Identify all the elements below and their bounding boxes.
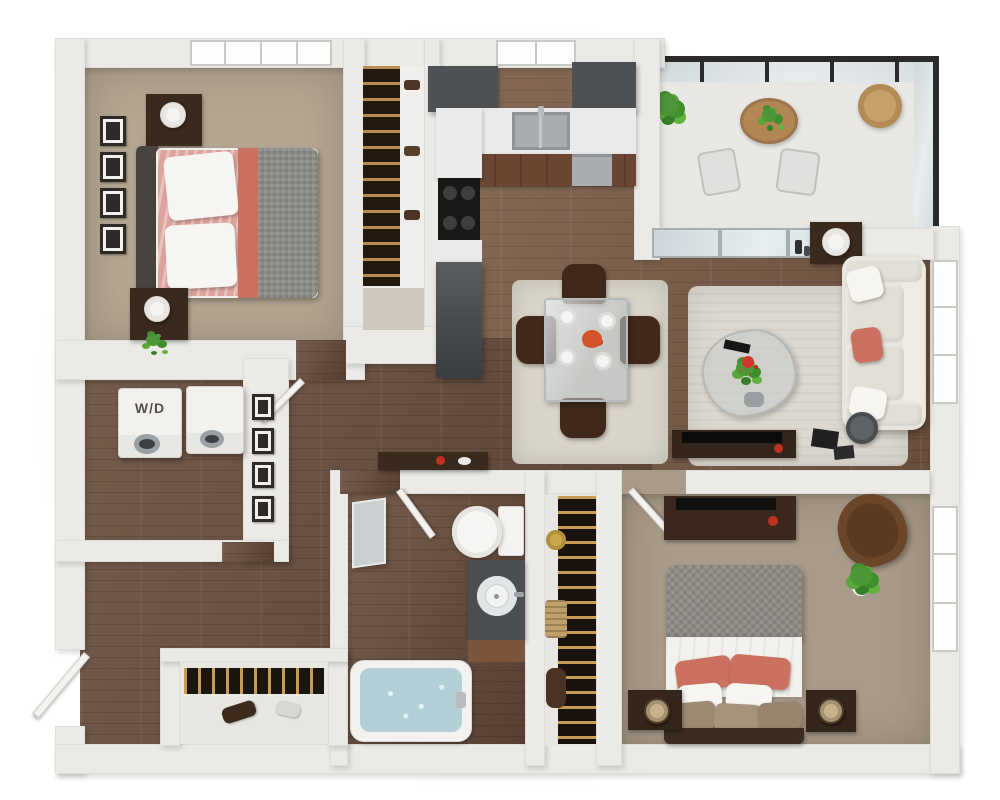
balcony-rail-right-glass <box>914 62 933 228</box>
closet2-hat-box <box>546 530 566 550</box>
balcony-wicker-chair <box>858 84 902 128</box>
bedroom2-duvet-gray <box>666 565 802 639</box>
bathtub-faucet <box>456 692 466 708</box>
bedroom1-headboard <box>136 146 158 300</box>
toilet-bowl <box>452 506 502 558</box>
closet1-shoes <box>404 146 420 156</box>
dryer-door <box>200 430 224 448</box>
bedroom1-wall-art <box>100 188 126 218</box>
sofa-back <box>902 262 924 424</box>
bedroom1-wall-art <box>100 116 126 146</box>
livingroom-window <box>932 260 958 404</box>
bedroom2-plant <box>850 566 872 586</box>
hallway-wall-art <box>252 394 274 420</box>
balcony-rail-post <box>700 60 704 82</box>
livingroom-speaker <box>833 445 854 460</box>
bedroom1-plant <box>146 334 160 346</box>
kitchen-dishwasher <box>572 154 612 186</box>
console-red-decor <box>768 516 778 526</box>
balcony-rail-top-glass <box>636 62 938 82</box>
balcony-rail-post <box>765 60 769 82</box>
closet2-storage-cylinder <box>546 668 566 708</box>
washer-dryer-label: W/D <box>120 400 180 418</box>
doorway-bedroom1 <box>296 340 346 380</box>
wall-bathroom-right <box>525 470 545 766</box>
entry-closet-rod-clothes <box>184 668 324 694</box>
cooktop-burner <box>443 186 457 200</box>
bedroom1-lamp <box>144 296 170 322</box>
wall-entrycloset-left <box>160 648 180 746</box>
balcony-rail-post <box>895 60 899 82</box>
wall-closet1-cap <box>343 326 440 364</box>
closet2-basket <box>545 600 567 638</box>
bedroom2-tv <box>676 498 776 510</box>
bedroom2-lamp <box>644 698 670 724</box>
bedroom1-wall-art <box>100 152 126 182</box>
closet1-floor-patch <box>363 288 424 330</box>
dining-place-setting <box>594 352 612 370</box>
closet1-shoes <box>404 210 420 220</box>
hallway-wall-art <box>252 496 274 522</box>
bedroom2-window <box>932 506 958 652</box>
bedroom1-lamp <box>160 102 186 128</box>
wall-kitchen-right <box>634 38 660 260</box>
livingroom-floor-lamp <box>846 412 878 444</box>
floorplan-render: W/D <box>0 0 1000 800</box>
kitchen-tall-cabinet <box>436 262 482 378</box>
wall-entrycloset-top <box>160 648 348 662</box>
bedroom2-pillow-taupe <box>757 700 803 731</box>
wall-bedroom1-closet <box>343 38 365 364</box>
dining-place-setting <box>558 308 576 326</box>
wall-closet2-right <box>596 470 622 766</box>
kitchen-sink-divider <box>539 114 542 148</box>
bedroom1-coral-throw <box>238 148 260 298</box>
dining-table-glass <box>544 298 628 402</box>
bathroom-leaning-mirror <box>352 498 386 569</box>
balcony-rail-right-bar <box>933 56 939 228</box>
coffee-table-vase <box>744 392 764 407</box>
console-red-decor <box>774 444 783 453</box>
balcony-table-plant <box>762 108 776 122</box>
bedroom1-gray-duvet <box>258 148 318 298</box>
sofa-pillow-coral <box>850 326 884 364</box>
kitchen-upper-cabinet-right <box>572 62 636 112</box>
kitchen-counter-left-run <box>436 108 482 178</box>
livingroom-bottle-decor <box>804 246 810 256</box>
console-red-decor <box>436 456 445 465</box>
balcony-rail-post <box>830 60 834 82</box>
kitchen-counter-strip <box>436 240 482 262</box>
kitchen-window <box>496 40 576 66</box>
livingroom-bottle-decor <box>795 240 802 254</box>
kitchen-faucet <box>538 106 544 116</box>
bedroom1-window <box>190 40 332 66</box>
dining-chair <box>560 398 606 438</box>
bedroom2-lamp <box>818 698 844 724</box>
livingroom-table-lamp <box>822 228 850 256</box>
bedroom1-wall-art <box>100 224 126 254</box>
wall-laundry-right <box>243 358 289 562</box>
balcony-patio-chair <box>775 147 821 196</box>
hallway-console <box>378 452 488 470</box>
doorway-laundry <box>222 542 274 562</box>
washer-door <box>134 434 160 454</box>
bedroom1-pillow <box>163 151 239 222</box>
bedroom1-pillow <box>164 222 237 290</box>
bedroom2-headboard <box>664 728 804 744</box>
cooktop-burner <box>461 216 475 230</box>
vanity-faucet <box>514 592 524 597</box>
dining-centerpiece-flowers <box>582 330 602 348</box>
vanity-wood-base <box>468 640 525 662</box>
balcony-patio-chair <box>696 147 741 197</box>
dining-place-setting <box>558 348 576 366</box>
closet1-shoes <box>404 80 420 90</box>
coffee-table-flowers-red <box>742 356 754 368</box>
kitchen-upper-cabinet-left <box>428 66 498 112</box>
cooktop-burner <box>443 216 457 230</box>
vanity-sink-drain <box>494 594 499 599</box>
hallway-wall-art <box>252 428 274 454</box>
cooktop-burner <box>461 186 475 200</box>
livingroom-tv <box>682 432 782 443</box>
bathtub-water <box>360 668 462 732</box>
wall-entrycloset-right <box>328 648 348 746</box>
closet1-hanging-clothes <box>363 66 400 286</box>
wall-bottom <box>55 744 960 774</box>
hallway-wall-art <box>252 462 274 488</box>
console-dish-decor <box>458 457 471 465</box>
dining-place-setting <box>598 312 616 330</box>
doorway-bathroom <box>340 470 400 494</box>
